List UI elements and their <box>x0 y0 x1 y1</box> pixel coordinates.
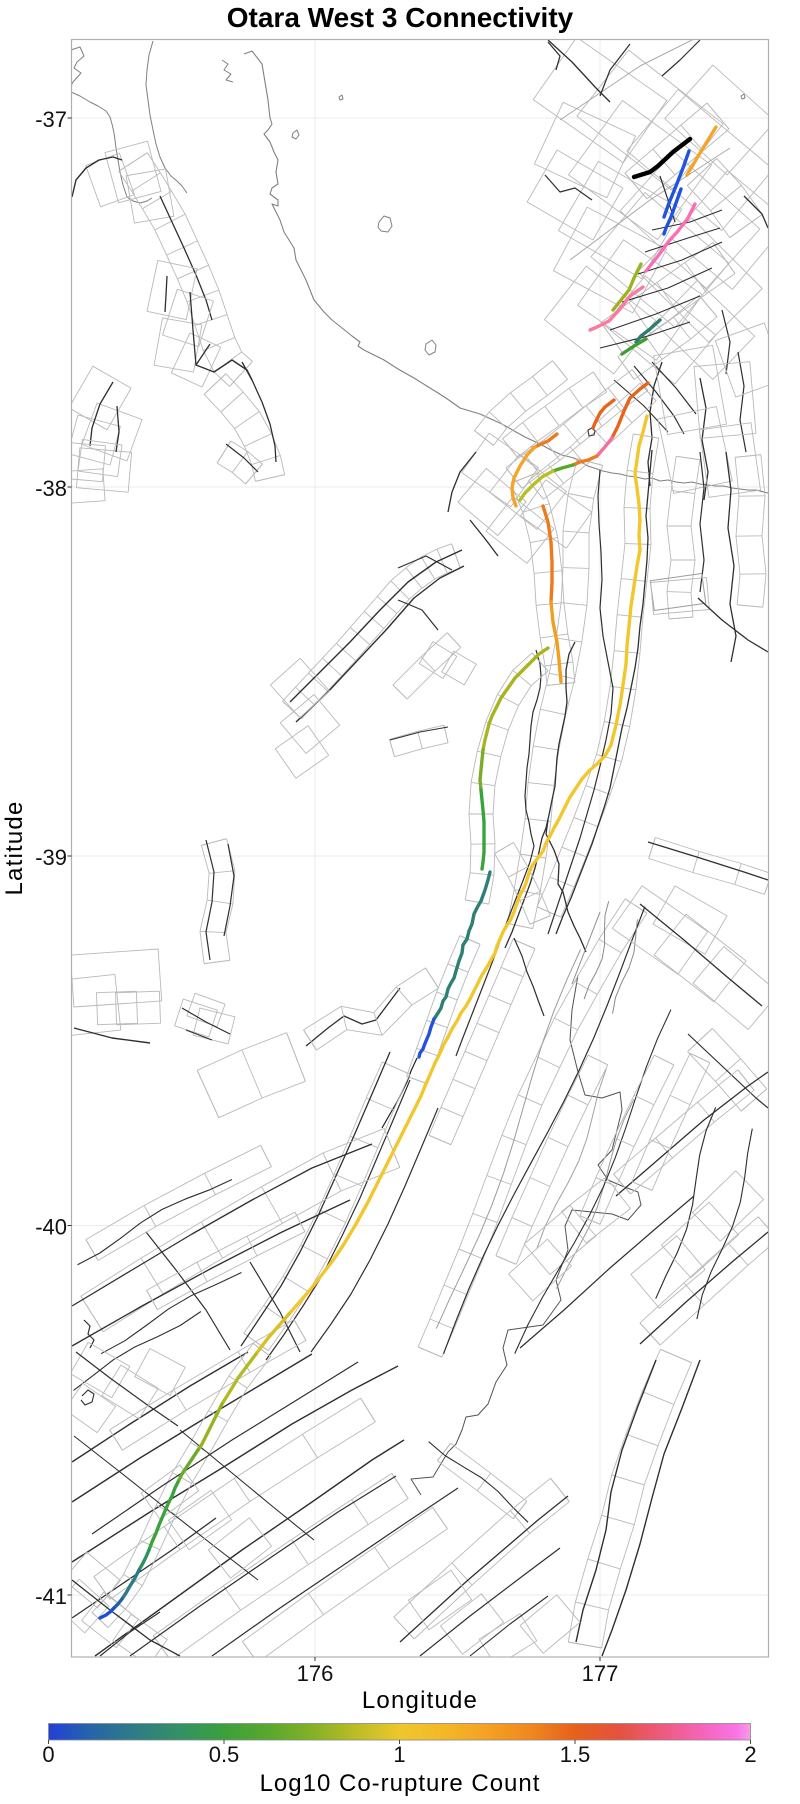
svg-text:177: 177 <box>582 1661 619 1686</box>
svg-text:0: 0 <box>42 1742 54 1767</box>
svg-text:-40: -40 <box>35 1215 67 1240</box>
svg-text:1: 1 <box>393 1742 405 1767</box>
svg-text:1.5: 1.5 <box>560 1742 591 1767</box>
svg-text:Log10 Co-rupture Count: Log10 Co-rupture Count <box>260 1770 541 1797</box>
svg-text:Longitude: Longitude <box>362 1687 478 1714</box>
svg-text:-38: -38 <box>35 476 67 501</box>
svg-text:0.5: 0.5 <box>209 1742 240 1767</box>
svg-text:Latitude: Latitude <box>1 800 28 895</box>
svg-text:2: 2 <box>744 1742 756 1767</box>
svg-text:Otara West 3 Connectivity: Otara West 3 Connectivity <box>227 2 574 33</box>
svg-text:-37: -37 <box>35 107 67 132</box>
svg-text:-41: -41 <box>35 1584 67 1609</box>
svg-text:176: 176 <box>297 1661 334 1686</box>
svg-text:-39: -39 <box>35 845 67 870</box>
